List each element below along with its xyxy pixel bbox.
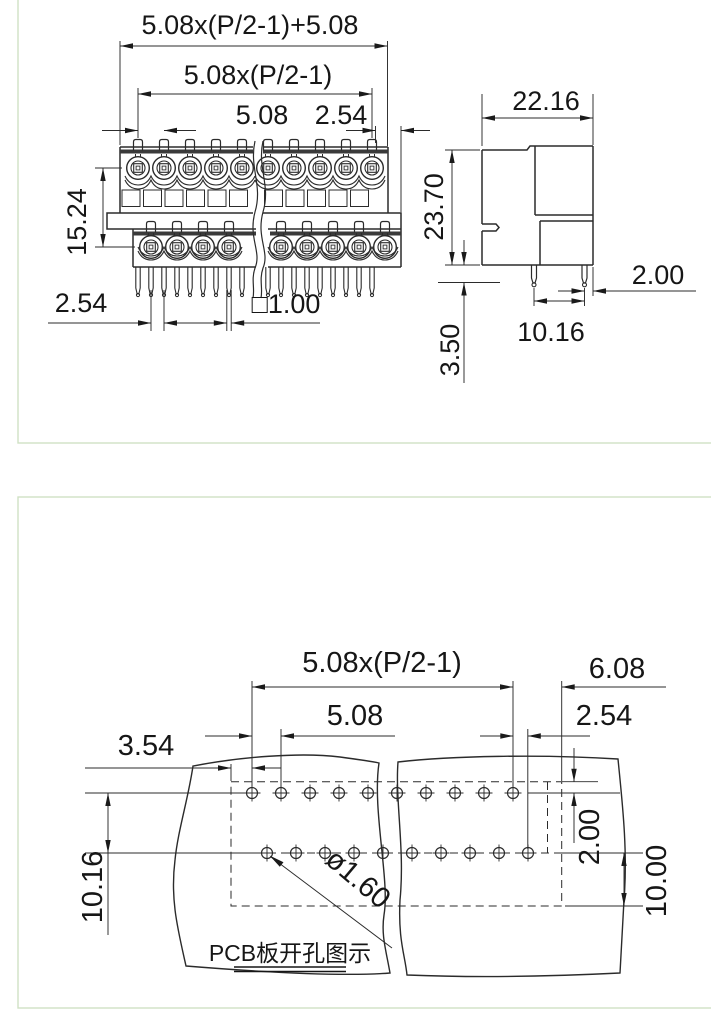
dim-pin-pitch: 2.54	[55, 288, 108, 318]
drawing-sheet: 5.08x(P/2-1)+5.08 5.08x(P/2-1) 5.08 2.54…	[0, 0, 711, 1013]
dim-end-margin: 2.54	[315, 100, 368, 130]
dim-edge-offset: 6.08	[589, 653, 645, 685]
dim-row-to-outline: 2.00	[574, 809, 606, 865]
dim-outline-depth: 10.00	[641, 845, 673, 918]
dim-pin-row-span: 10.16	[517, 317, 585, 347]
dim-overall-width: 5.08x(P/2-1)+5.08	[142, 10, 359, 40]
dim-row-stagger: 2.54	[576, 700, 632, 732]
dim-contact-span: 5.08x(P/2-1)	[184, 60, 333, 90]
top-panel-frame	[18, 0, 711, 443]
dim-pin-square: □1.00	[252, 289, 321, 319]
dim-outline-margin: 3.54	[118, 730, 174, 762]
dim-hole-span: 5.08x(P/2-1)	[302, 647, 462, 679]
dim-depth: 22.16	[512, 86, 580, 116]
technical-drawing: 5.08x(P/2-1)+5.08 5.08x(P/2-1) 5.08 2.54…	[0, 0, 711, 1013]
dim-pin-protrusion: 3.50	[435, 324, 465, 377]
dim-row-spacing: 15.24	[62, 188, 92, 256]
dim-row-spacing-pcb: 10.16	[77, 851, 109, 924]
dim-hole-pitch: 5.08	[327, 700, 383, 732]
dim-contact-pitch: 5.08	[236, 100, 289, 130]
dim-height: 23.70	[419, 173, 449, 241]
dim-pin-to-edge: 2.00	[632, 260, 685, 290]
pcb-caption: PCB板开孔图示	[209, 940, 371, 966]
